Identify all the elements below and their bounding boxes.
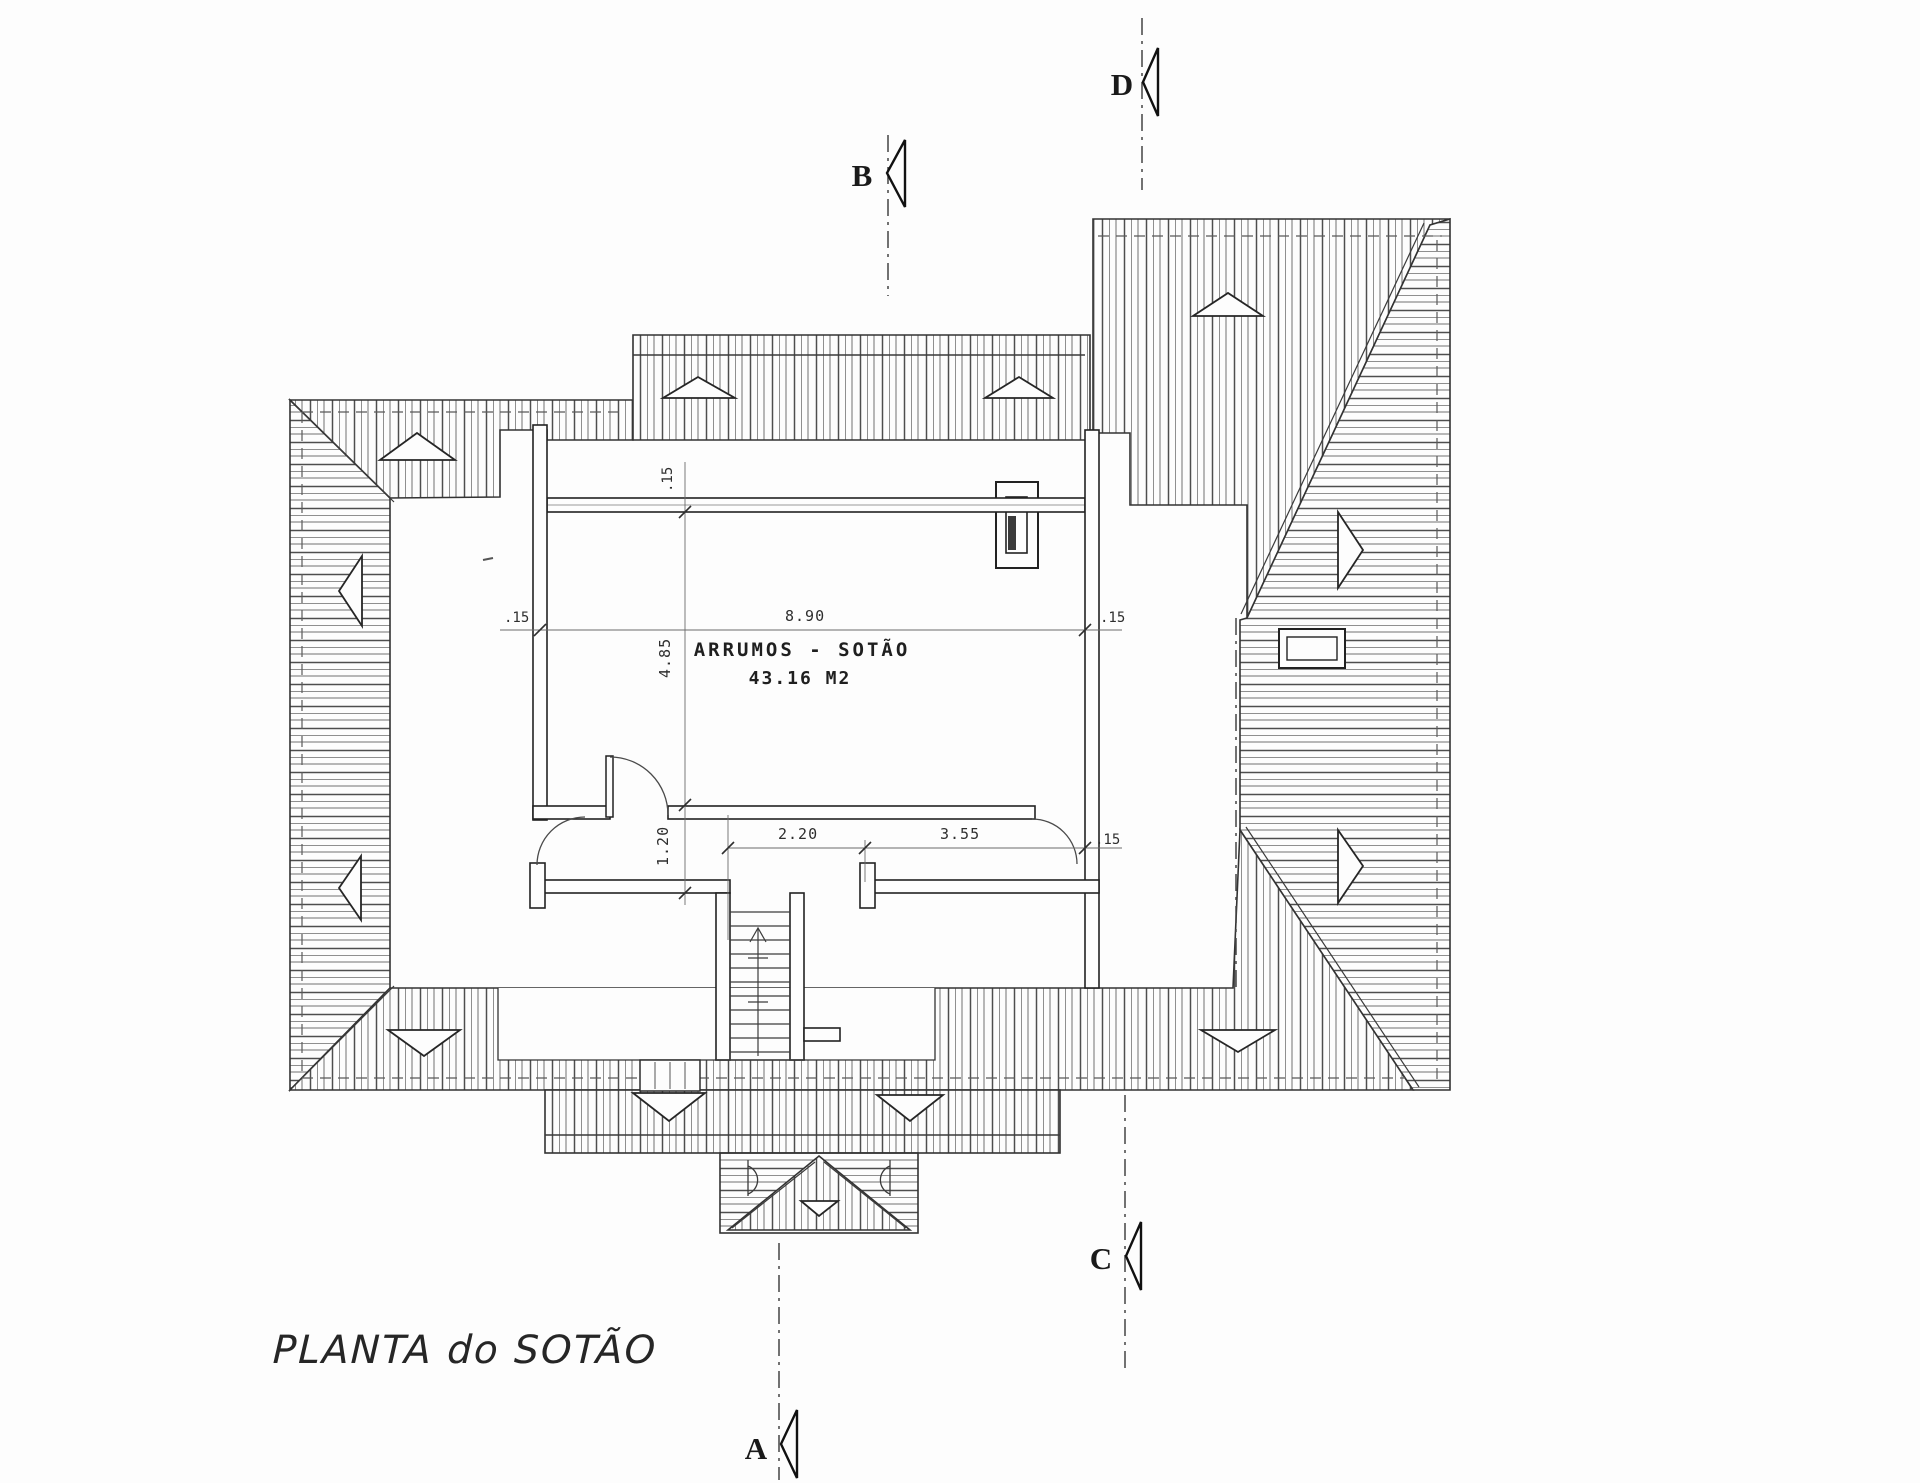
section-marker-b-icon bbox=[887, 140, 905, 207]
door-swing-arc bbox=[537, 817, 585, 865]
section-letters: B D C A bbox=[745, 67, 1133, 1466]
wall-room-right bbox=[1085, 430, 1099, 988]
section-letter-c: C bbox=[1090, 1241, 1112, 1276]
skylight bbox=[1279, 629, 1345, 668]
floor-plan-canvas: .15 8.90 .15 .15 4.85 1.20 2.20 3.55 .15… bbox=[0, 0, 1920, 1483]
dimension-wall-top: .15 bbox=[660, 467, 676, 492]
section-letter-b: B bbox=[852, 158, 873, 193]
dimension-room-depth: 4.85 bbox=[656, 638, 674, 678]
wall-room-bottom bbox=[668, 806, 1035, 819]
dimension-hall-width: 3.55 bbox=[940, 825, 980, 843]
wall-hall-right bbox=[865, 880, 1099, 893]
wall-stairwell-right bbox=[790, 893, 804, 1060]
section-letter-a: A bbox=[745, 1431, 768, 1466]
wall-stair-return bbox=[804, 1028, 840, 1041]
roof-band-left bbox=[290, 400, 390, 1090]
door-swing-arc bbox=[1032, 819, 1077, 864]
section-marker-c-icon bbox=[1126, 1222, 1141, 1290]
dimension-room-width: 8.90 bbox=[785, 607, 825, 625]
wall-end-cap bbox=[860, 863, 875, 908]
misc-mark bbox=[483, 558, 493, 560]
chimney bbox=[996, 482, 1038, 568]
stair-landing-box bbox=[640, 1060, 700, 1091]
roof-band-bottom-lower bbox=[545, 1090, 1060, 1153]
wall-end-cap bbox=[530, 863, 545, 908]
dimension-wall-left: .15 bbox=[504, 610, 529, 626]
wall-room-left bbox=[533, 425, 547, 820]
dimension-stair-bay-width: 2.20 bbox=[778, 825, 818, 843]
wall-hall-left bbox=[535, 880, 730, 893]
roof-plan bbox=[290, 219, 1450, 1233]
dimension-hall-depth: 1.20 bbox=[654, 826, 672, 866]
door-leaf bbox=[606, 756, 613, 817]
room-area: 43.16 M2 bbox=[749, 668, 852, 689]
section-letter-d: D bbox=[1111, 67, 1133, 102]
room-label: ARRUMOS - SOTÃO 43.16 M2 bbox=[694, 637, 911, 689]
plan-title: PLANTA do SOTÃO bbox=[272, 1326, 658, 1373]
section-marker-a-icon bbox=[781, 1410, 797, 1478]
drawing-sheet: .15 8.90 .15 .15 4.85 1.20 2.20 3.55 .15… bbox=[0, 0, 1920, 1483]
wall-room-bottom bbox=[533, 806, 610, 819]
room-name: ARRUMOS - SOTÃO bbox=[694, 637, 911, 661]
dimension-wall-right: .15 bbox=[1100, 610, 1125, 626]
dimension-wall-hall-right: .15 bbox=[1095, 832, 1120, 848]
chimney-flue-mark bbox=[1008, 516, 1016, 550]
section-marker-d-icon bbox=[1143, 48, 1158, 116]
door-swing-arc bbox=[610, 757, 668, 815]
